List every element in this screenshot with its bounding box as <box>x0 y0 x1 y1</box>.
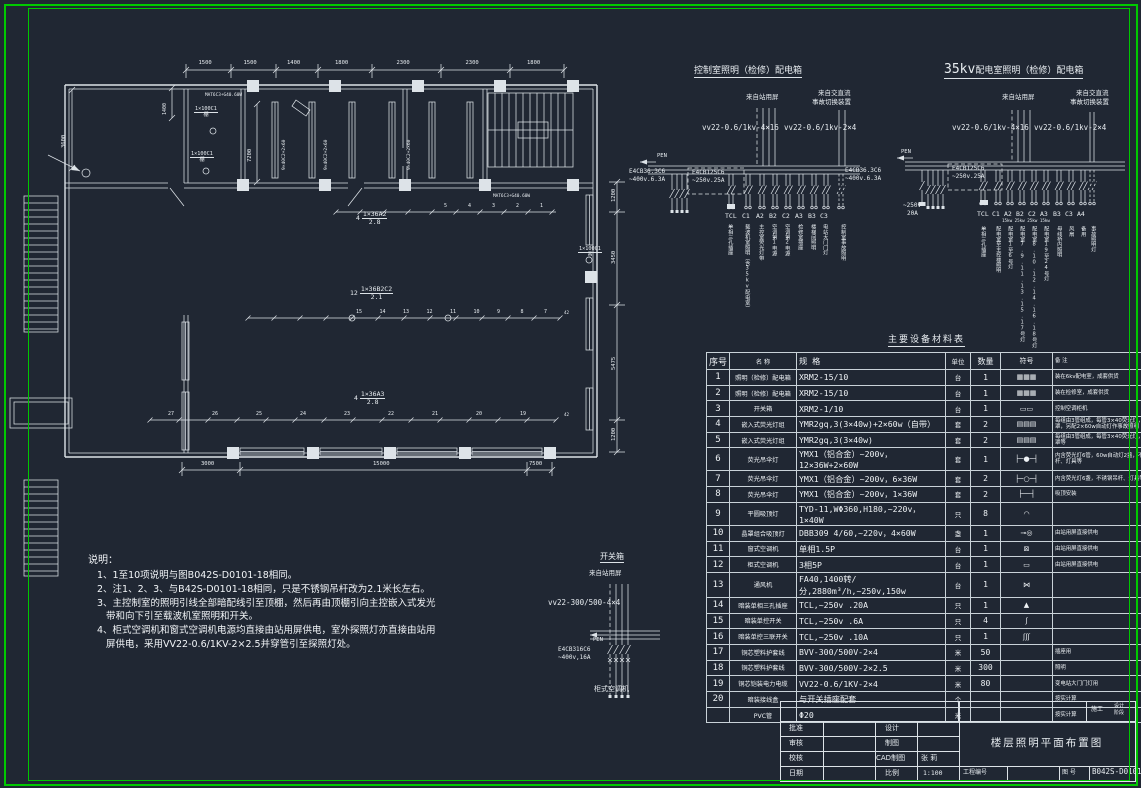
item-remark: 装在6kv配电室，成套供货 <box>1053 370 1141 386</box>
table-row: 18铜芯塑料护套线BVV-300/500V-2×2.5米300照明 <box>707 660 1141 676</box>
dim-top: 1500 <box>199 61 219 67</box>
item-remark: 由站用屏直接供电 <box>1053 525 1141 541</box>
row-no: 9 <box>707 502 730 525</box>
circuit-label: 单相三孔插座 <box>727 224 732 255</box>
circuit-tag: C1 <box>992 211 1000 218</box>
circuit-label: 检修室插座 <box>797 224 802 250</box>
item-name: 开关箱 <box>730 401 797 417</box>
item-qty: 1 <box>971 629 1001 645</box>
item-spec: YMX1（铝合金）~200v，1×36W <box>797 487 946 503</box>
plan-annotation: 42 <box>564 413 569 417</box>
item-symbol: ◠ <box>1001 502 1053 525</box>
boxB-breaker1-rating: ~400v.6.3A <box>845 176 881 182</box>
circuit-label: 配电室1至6号灯 <box>1007 226 1012 269</box>
cad-draft-name: 张 莉 <box>921 751 937 766</box>
item-qty: 300 <box>971 660 1001 676</box>
design-label: 设计 <box>879 721 899 736</box>
row-no: 2 <box>707 385 730 401</box>
item-symbol: ├─●─┤ <box>1001 448 1053 471</box>
item-remark: 照明 <box>1053 660 1141 676</box>
item-qty: 1 <box>971 448 1001 471</box>
item-spec: TCL,~250v .6A <box>797 613 946 629</box>
boxB-title: 35kv配电室照明（检修）配电箱 <box>944 60 1083 77</box>
boxA-cable1: vv22-0.6/1kv-4×16 <box>702 124 779 132</box>
item-remark <box>1053 597 1141 613</box>
item-spec: XRM2-15/10 <box>797 385 946 401</box>
lamp-number: 13 <box>403 310 409 315</box>
review-label: 审核 <box>783 736 803 751</box>
project-no-label: 工程编号 <box>963 770 987 776</box>
boxB-kw-row: 15kw 25kw 25kw 15kw <box>1002 219 1050 223</box>
materials-col-header: 单位 <box>946 353 971 370</box>
item-remark: 内含荧光灯6管，60w自动灯2盏，不锈钢吊杆、灯具等 <box>1053 448 1141 471</box>
item-spec: DBB309 4/60,~220v，4×60W <box>797 525 946 541</box>
circuit-label: 备用 <box>1080 226 1085 236</box>
boxC-cable: vv22-300/500-4×4 <box>548 599 620 607</box>
item-qty: 1 <box>971 525 1001 541</box>
fixture-count: 4 <box>354 395 358 402</box>
boxB-breaker2-model: E4CB125C6 <box>952 166 985 172</box>
scale-value: 1:100 <box>923 766 943 781</box>
lamp-number: 2 <box>516 204 519 209</box>
boxA-breaker2-rating: ~250v.25A <box>692 178 725 184</box>
boxB-breaker3-voltage: ~250v <box>903 203 921 209</box>
item-remark: 由站用屏直接供电 <box>1053 541 1141 557</box>
item-unit: 套 <box>946 487 971 503</box>
figure-no-label: 图 号 <box>1062 770 1076 776</box>
row-no: 8 <box>707 487 730 503</box>
item-symbol: ▭▭ <box>1001 401 1053 417</box>
item-qty: 2 <box>971 487 1001 503</box>
lamp-number: 1 <box>540 204 543 209</box>
boxA-pen-label: PEN <box>657 154 667 160</box>
item-symbol <box>1001 660 1053 676</box>
item-symbol: ├─○─┤ <box>1001 471 1053 487</box>
boxB-title-kv: 35kv <box>944 62 975 77</box>
table-row: 2照明（检修）配电箱XRM2-15/10台1▦▦▦装在检修室，成套供货 <box>707 385 1141 401</box>
circuit-label: 风扇 <box>1068 226 1073 236</box>
materials-col-header: 规 格 <box>797 353 946 370</box>
row-no: 16 <box>707 629 730 645</box>
materials-table: 序号名 称规 格单位数量符号备 注 1照明（检修）配电箱XRM2-15/10台1… <box>706 352 1141 723</box>
item-symbol: ▲ <box>1001 597 1053 613</box>
item-qty: 2 <box>971 417 1001 433</box>
circuit-tag: C2 <box>782 213 790 220</box>
circuit-tag: TCL <box>725 213 737 220</box>
lamp-number: 19 <box>520 412 526 417</box>
notes-title: 说明： <box>88 551 118 566</box>
row-no: 19 <box>707 676 730 692</box>
fixture-callout: 1×100C1棚 <box>190 152 214 164</box>
item-symbol <box>1001 644 1053 660</box>
materials-col-header: 名 称 <box>730 353 797 370</box>
item-remark: 变电站大门门灯用 <box>1053 676 1141 692</box>
materials-table-title: 主要设备材料表 <box>888 336 965 347</box>
item-name: 荧光吊伞灯 <box>730 471 797 487</box>
boxA-breaker1-rating: ~400v.6.3A <box>629 177 665 183</box>
lamp-number: 15 <box>356 310 362 315</box>
item-spec: TCL,~250v .10A <box>797 629 946 645</box>
note-line: 屏供电，采用VV22-0.6/1KV-2×2.5并穿管引至探照灯处。 <box>106 636 356 650</box>
circuit-label: 楼梯间照明 <box>810 224 815 250</box>
table-row: 11窗式空调机单相1.5P台1⊠由站用屏直接供电 <box>707 541 1141 557</box>
lamp-number: 11 <box>450 310 456 315</box>
dim-right: 1200 <box>612 428 618 441</box>
item-remark: 控制空调柜机 <box>1053 401 1141 417</box>
plan-annotation: MAT6C3+G40.60W <box>493 195 530 200</box>
row-no: 7 <box>707 471 730 487</box>
plan-annotation: 9×40C2+2×60 <box>283 140 288 170</box>
circuit-label: 单相三孔插座 <box>980 226 985 257</box>
item-spec: TYD-11,WΦ360,H180,~220v，1×40W <box>797 502 946 525</box>
item-unit: 台 <box>946 541 971 557</box>
item-unit: 只 <box>946 629 971 645</box>
materials-col-header: 备 注 <box>1053 353 1141 370</box>
materials-table-header: 序号名 称规 格单位数量符号备 注 <box>707 353 1141 370</box>
dim-top: 2300 <box>466 61 486 67</box>
circuit-tag: A3 <box>1040 211 1048 218</box>
note-line: 2、注1、2、3、与B42S-D0101-18相同，只是不锈钢吊杆改为2.1米长… <box>97 581 430 595</box>
item-unit: 台 <box>946 557 971 573</box>
lamp-number: 8 <box>521 310 524 315</box>
lamp-number: 3 <box>492 204 495 209</box>
item-name: 荧光吊伞灯 <box>730 448 797 471</box>
circuit-label: 主控室荧光灯带 <box>758 224 763 260</box>
dim-top: 1400 <box>287 61 307 67</box>
item-name: 柜式空调机 <box>730 557 797 573</box>
circuit-tag: A2 <box>756 213 764 220</box>
boxB-cable2: vv22-0.6/1kv-2×4 <box>1034 124 1106 132</box>
lamp-number: 9 <box>497 310 500 315</box>
item-spec: BVV-300/500V-2×4 <box>797 644 946 660</box>
row-no: 14 <box>707 597 730 613</box>
item-remark: 吸顶安装 <box>1053 487 1141 503</box>
item-qty: 8 <box>971 502 1001 525</box>
item-unit: 台 <box>946 385 971 401</box>
note-line: 1、1至10项说明与图B042S-D0101-18相同。 <box>97 567 297 581</box>
draft-label: 制图 <box>879 736 899 751</box>
plan-annotation: MAT6C3+G40.60W <box>205 94 242 99</box>
item-unit: 米 <box>946 676 971 692</box>
item-symbol: ▦▦▦ <box>1001 385 1053 401</box>
fixture-mounting: 棚 <box>190 158 214 163</box>
dim-right: 3450 <box>612 251 618 264</box>
note-line: 带和向下引至载波机室照明和开关。 <box>106 608 258 622</box>
row-no: 12 <box>707 557 730 573</box>
item-qty: 1 <box>971 385 1001 401</box>
item-name: 平圆吸顶灯 <box>730 502 797 525</box>
materials-col-header: 符号 <box>1001 353 1053 370</box>
item-name: 暗装单控三联开关 <box>730 629 797 645</box>
item-unit: 台 <box>946 572 971 597</box>
item-symbol: ʃʃʃ <box>1001 629 1053 645</box>
boxB-source1-label: 来自站用屏 <box>1002 94 1035 101</box>
row-no: 10 <box>707 525 730 541</box>
lamp-number: 12 <box>427 310 433 315</box>
item-spec: VV22-0.6/1KV-2×4 <box>797 676 946 692</box>
lamp-number: 14 <box>380 310 386 315</box>
item-spec: YMR2gq,3(3×40w) <box>797 432 946 448</box>
fixture-count: 4 <box>356 215 360 222</box>
item-name: 铜芯塑料护套线 <box>730 660 797 676</box>
dim-right: 5475 <box>612 357 618 370</box>
circuit-label: 母线桥内照明 <box>1056 226 1061 257</box>
boxB-pen-label: PEN <box>901 150 911 156</box>
item-symbol: ├──┤ <box>1001 487 1053 503</box>
item-qty: 2 <box>971 471 1001 487</box>
circuit-tag: TCL <box>977 211 989 218</box>
boxB-source2-label-1: 来自交直流 <box>1076 90 1109 97</box>
lamp-number: 21 <box>432 412 438 417</box>
fixture-callout: 121×36B2C22.1 <box>350 286 393 301</box>
stage-label-3: 阶段 <box>1114 711 1124 716</box>
circuit-tag: B2 <box>769 213 777 220</box>
row-no: 17 <box>707 644 730 660</box>
item-name: 铜芯塑料护套线 <box>730 644 797 660</box>
circuit-tag: A4 <box>1077 211 1085 218</box>
row-no: 3 <box>707 401 730 417</box>
circuit-tag: B2 <box>1016 211 1024 218</box>
item-name: 暗装单相三孔插座 <box>730 597 797 613</box>
circuit-label: 电站大门门灯 <box>822 224 827 255</box>
item-name: 照明（检修）配电箱 <box>730 385 797 401</box>
item-symbol: ▤▤▤ <box>1001 432 1053 448</box>
lamp-number: 7 <box>544 310 547 315</box>
boxA-source2-label-1: 来自交直流 <box>818 90 851 97</box>
materials-col-header: 数量 <box>971 353 1001 370</box>
item-unit: 只 <box>946 613 971 629</box>
note-line: 4、柜式空调机和窗式空调机电源均直接由站用屏供电，室外探照灯亦直接由站用 <box>97 622 436 636</box>
cad-draft-label: CAD制图 <box>874 751 905 766</box>
row-no: 4 <box>707 417 730 433</box>
lamp-number: 25 <box>256 412 262 417</box>
item-qty: 1 <box>971 557 1001 573</box>
item-spec: TCL,~250v .20A <box>797 597 946 613</box>
item-name: 通风机 <box>730 572 797 597</box>
table-row: 7荧光吊伞灯YMX1（铝合金）~200v，6×36W套2├─○─┤内含荧光灯6盏… <box>707 471 1141 487</box>
item-name: 照明（检修）配电箱 <box>730 370 797 386</box>
fixture-mounting: 2.1 <box>360 294 393 301</box>
boxB-source2-label-2: 事故切换装置 <box>1070 99 1109 106</box>
item-symbol: ▭ <box>1001 557 1053 573</box>
circuit-tag: C2 <box>1028 211 1036 218</box>
item-qty: 1 <box>971 541 1001 557</box>
item-unit: 套 <box>946 448 971 471</box>
item-qty: 4 <box>971 613 1001 629</box>
item-unit: 只 <box>946 597 971 613</box>
item-spec: YMX1（铝合金）~200v，6×36W <box>797 471 946 487</box>
fixture-callout: 1×100C1吊 <box>578 247 602 259</box>
item-qty: 1 <box>971 597 1001 613</box>
dim-top: 2300 <box>397 61 417 67</box>
item-remark <box>1053 613 1141 629</box>
circuit-label: 配电室19至24号灯 <box>1043 226 1048 281</box>
table-row: 3开关箱XRM2-1/10台1▭▭控制空调柜机 <box>707 401 1141 417</box>
table-row: 14暗装单相三孔插座TCL,~250v .20A只1▲ <box>707 597 1141 613</box>
table-row: 17铜芯塑料护套线BVV-300/500V-2×4米50插座用 <box>707 644 1141 660</box>
lamp-number: 23 <box>344 412 350 417</box>
item-remark <box>1053 629 1141 645</box>
circuit-label: 配电室8.10.12.14.16.18号灯 <box>1031 226 1036 348</box>
circuit-tag: A2 <box>1004 211 1012 218</box>
boxA-breaker1-model: E4CB36.3C6 <box>629 169 665 175</box>
dim-top: 1800 <box>527 61 547 67</box>
plan-annotation: 42 <box>564 311 569 315</box>
boxA-breaker2-model: E4CB125C6 <box>692 170 725 176</box>
circuit-label: 空调第2电源 <box>784 224 789 256</box>
title-block: 施工 设计 阶段 批准 审核 校核 日期 设计 制图 CAD制图 张 莉 比例 … <box>780 701 1136 782</box>
boxC-breaker-model: E4CB316C6 <box>558 647 591 653</box>
table-row: 9平圆吸顶灯TYD-11,WΦ360,H180,~220v，1×40W只8◠ <box>707 502 1141 525</box>
item-qty: 2 <box>971 432 1001 448</box>
table-row: 4嵌入式荧光灯组YMR2gq,3(3×40w)+2×60w（自带）套2▤▤▤每组… <box>707 417 1141 433</box>
dim-right: 1200 <box>612 189 618 202</box>
fixture-callout: 1×100C1棚 <box>194 107 218 119</box>
lamp-number: 22 <box>388 412 394 417</box>
item-unit: 只 <box>946 502 971 525</box>
boxC-breaker-rating: ~400v,16A <box>558 655 591 661</box>
item-symbol <box>1001 676 1053 692</box>
row-no: 1 <box>707 370 730 386</box>
table-row: 15暗装单控开关TCL,~250v .6A只4ʃ <box>707 613 1141 629</box>
row-no: 20 <box>707 692 730 708</box>
date-label: 日期 <box>783 766 803 781</box>
item-qty: 1 <box>971 401 1001 417</box>
fixture-mounting: 吊 <box>578 253 602 258</box>
stage-label-1: 施工 <box>1091 707 1103 713</box>
boxB-breaker3-rating: 20A <box>907 211 918 217</box>
item-spec: XRM2-1/10 <box>797 401 946 417</box>
item-unit: 盏 <box>946 525 971 541</box>
stage-label-2: 设计 <box>1114 704 1124 709</box>
boxB-breaker2-rating: ~250v.25A <box>952 174 985 180</box>
item-remark: 装在检修室，成套供货 <box>1053 385 1141 401</box>
row-no: 13 <box>707 572 730 597</box>
table-row: 19铜芯铠装电力电缆VV22-0.6/1KV-2×4米80变电站大门门灯用 <box>707 676 1141 692</box>
lamp-number: 5 <box>444 204 447 209</box>
item-remark: 插座用 <box>1053 644 1141 660</box>
fixture-callout: 41×36A22.8 <box>356 211 387 226</box>
row-no <box>707 707 730 723</box>
plan-annotation: 7200 <box>248 149 254 162</box>
cad-sheet: 1500150014001800230023001800300015000750… <box>0 0 1141 788</box>
row-no: 6 <box>707 448 730 471</box>
item-name: 晶罩组合吸顶灯 <box>730 525 797 541</box>
item-spec: YMX1（铝合金）~200v，12×36W+2×60W <box>797 448 946 471</box>
circuit-label: 事故照明灯 <box>1090 226 1095 252</box>
circuit-label: 载波机室照明（含35kv配电室） <box>744 224 749 310</box>
dim-bottom: 3000 <box>201 462 214 468</box>
dim-top: 1800 <box>335 61 355 67</box>
materials-table-body: 1照明（检修）配电箱XRM2-15/10台1▦▦▦装在6kv配电室，成套供货2照… <box>707 370 1141 723</box>
table-row: 5嵌入式荧光灯组YMR2gq,3(3×40w)套2▤▤▤每组由3管组成，每管3×… <box>707 432 1141 448</box>
item-remark <box>1053 502 1141 525</box>
item-spec: 3相5P <box>797 557 946 573</box>
item-symbol: ⋈ <box>1001 572 1053 597</box>
fixture-mounting: 棚 <box>194 113 218 118</box>
item-remark: 内含荧光灯6盏，不锈钢吊杆、灯具等 <box>1053 471 1141 487</box>
lamp-number: 27 <box>168 412 174 417</box>
lamp-number: 4 <box>468 204 471 209</box>
item-name: 荧光吊伞灯 <box>730 487 797 503</box>
row-no: 11 <box>707 541 730 557</box>
dim-top: 1500 <box>244 61 264 67</box>
circuit-label: 配电室7.9.11.13.15.17号灯 <box>1019 226 1024 342</box>
item-name: 暗装单控开关 <box>730 613 797 629</box>
item-symbol: ▤▤▤ <box>1001 417 1053 433</box>
item-qty: 80 <box>971 676 1001 692</box>
figure-number: B042S-D0101-19 <box>1092 768 1141 776</box>
dim-bottom: 7500 <box>529 462 542 468</box>
item-unit: 套 <box>946 432 971 448</box>
plan-annotation: 9×40C2+2×60 <box>408 140 413 170</box>
fixture-callout: 41×36A32.8 <box>354 391 385 406</box>
item-unit: 米 <box>946 644 971 660</box>
lamp-number: 24 <box>300 412 306 417</box>
circuit-tag: A3 <box>795 213 803 220</box>
row-no: 5 <box>707 432 730 448</box>
row-no: 18 <box>707 660 730 676</box>
item-qty: 1 <box>971 572 1001 597</box>
item-qty: 50 <box>971 644 1001 660</box>
item-unit: 套 <box>946 417 971 433</box>
table-row: 6荧光吊伞灯YMX1（铝合金）~200v，12×36W+2×60W套1├─●─┤… <box>707 448 1141 471</box>
table-row: 16暗装单控三联开关TCL,~250v .10A只1ʃʃʃ <box>707 629 1141 645</box>
circuit-tag: B3 <box>1053 211 1061 218</box>
fixture-count: 12 <box>350 290 358 297</box>
boxB-title-text: 配电室照明（检修）配电箱 <box>975 66 1083 76</box>
scale-label: 比例 <box>879 766 899 781</box>
circuit-tag: C3 <box>820 213 828 220</box>
boxA-source2-label-2: 事故切换装置 <box>812 99 851 106</box>
table-row: 1照明（检修）配电箱XRM2-15/10台1▦▦▦装在6kv配电室，成套供货 <box>707 370 1141 386</box>
item-spec: BVV-300/500V-2×2.5 <box>797 660 946 676</box>
dim-bottom: 15000 <box>373 462 390 468</box>
item-name: 窗式空调机 <box>730 541 797 557</box>
item-qty: 1 <box>971 370 1001 386</box>
plan-annotation: 9×40C2+2×60 <box>325 140 330 170</box>
fixture-mounting: 2.8 <box>362 219 387 226</box>
item-symbol: ⊠ <box>1001 541 1053 557</box>
item-spec: YMR2gq,3(3×40w)+2×60w（自带） <box>797 417 946 433</box>
item-unit: 台 <box>946 370 971 386</box>
boxC-load-label: 柜式空调机 <box>594 686 629 693</box>
materials-col-header: 序号 <box>707 353 730 370</box>
item-remark: 由站用屏直接供电 <box>1053 557 1141 573</box>
item-unit: 套 <box>946 471 971 487</box>
item-symbol: ▦▦▦ <box>1001 370 1053 386</box>
table-row: 13通风机FA40,1400转/分,2880m³/h,~250v,150w台1⋈ <box>707 572 1141 597</box>
item-name: 嵌入式荧光灯组 <box>730 417 797 433</box>
item-spec: 单相1.5P <box>797 541 946 557</box>
item-spec: XRM2-15/10 <box>797 370 946 386</box>
circuit-label: 控制室事故照明 <box>840 224 845 260</box>
lamp-number: 20 <box>476 412 482 417</box>
plan-annotation: 1400 <box>163 103 168 115</box>
table-row: 8荧光吊伞灯YMX1（铝合金）~200v，1×36W套2├──┤吸顶安装 <box>707 487 1141 503</box>
boxC-source-label: 来自站用屏 <box>589 570 622 577</box>
circuit-tag: C1 <box>742 213 750 220</box>
boxB-breaker1-model: E4CB36.3C6 <box>845 168 881 174</box>
plan-annotation: 3600 <box>62 135 68 148</box>
circuit-tag: C3 <box>1065 211 1073 218</box>
item-remark <box>1053 572 1141 597</box>
item-name: 铜芯铠装电力电缆 <box>730 676 797 692</box>
table-row: 12柜式空调机3相5P台1▭由站用屏直接供电 <box>707 557 1141 573</box>
table-row: 10晶罩组合吸顶灯DBB309 4/60,~220v，4×60W盏1⊸◎由站用屏… <box>707 525 1141 541</box>
item-name: 嵌入式荧光灯组 <box>730 432 797 448</box>
fixture-mounting: 2.8 <box>360 399 385 406</box>
